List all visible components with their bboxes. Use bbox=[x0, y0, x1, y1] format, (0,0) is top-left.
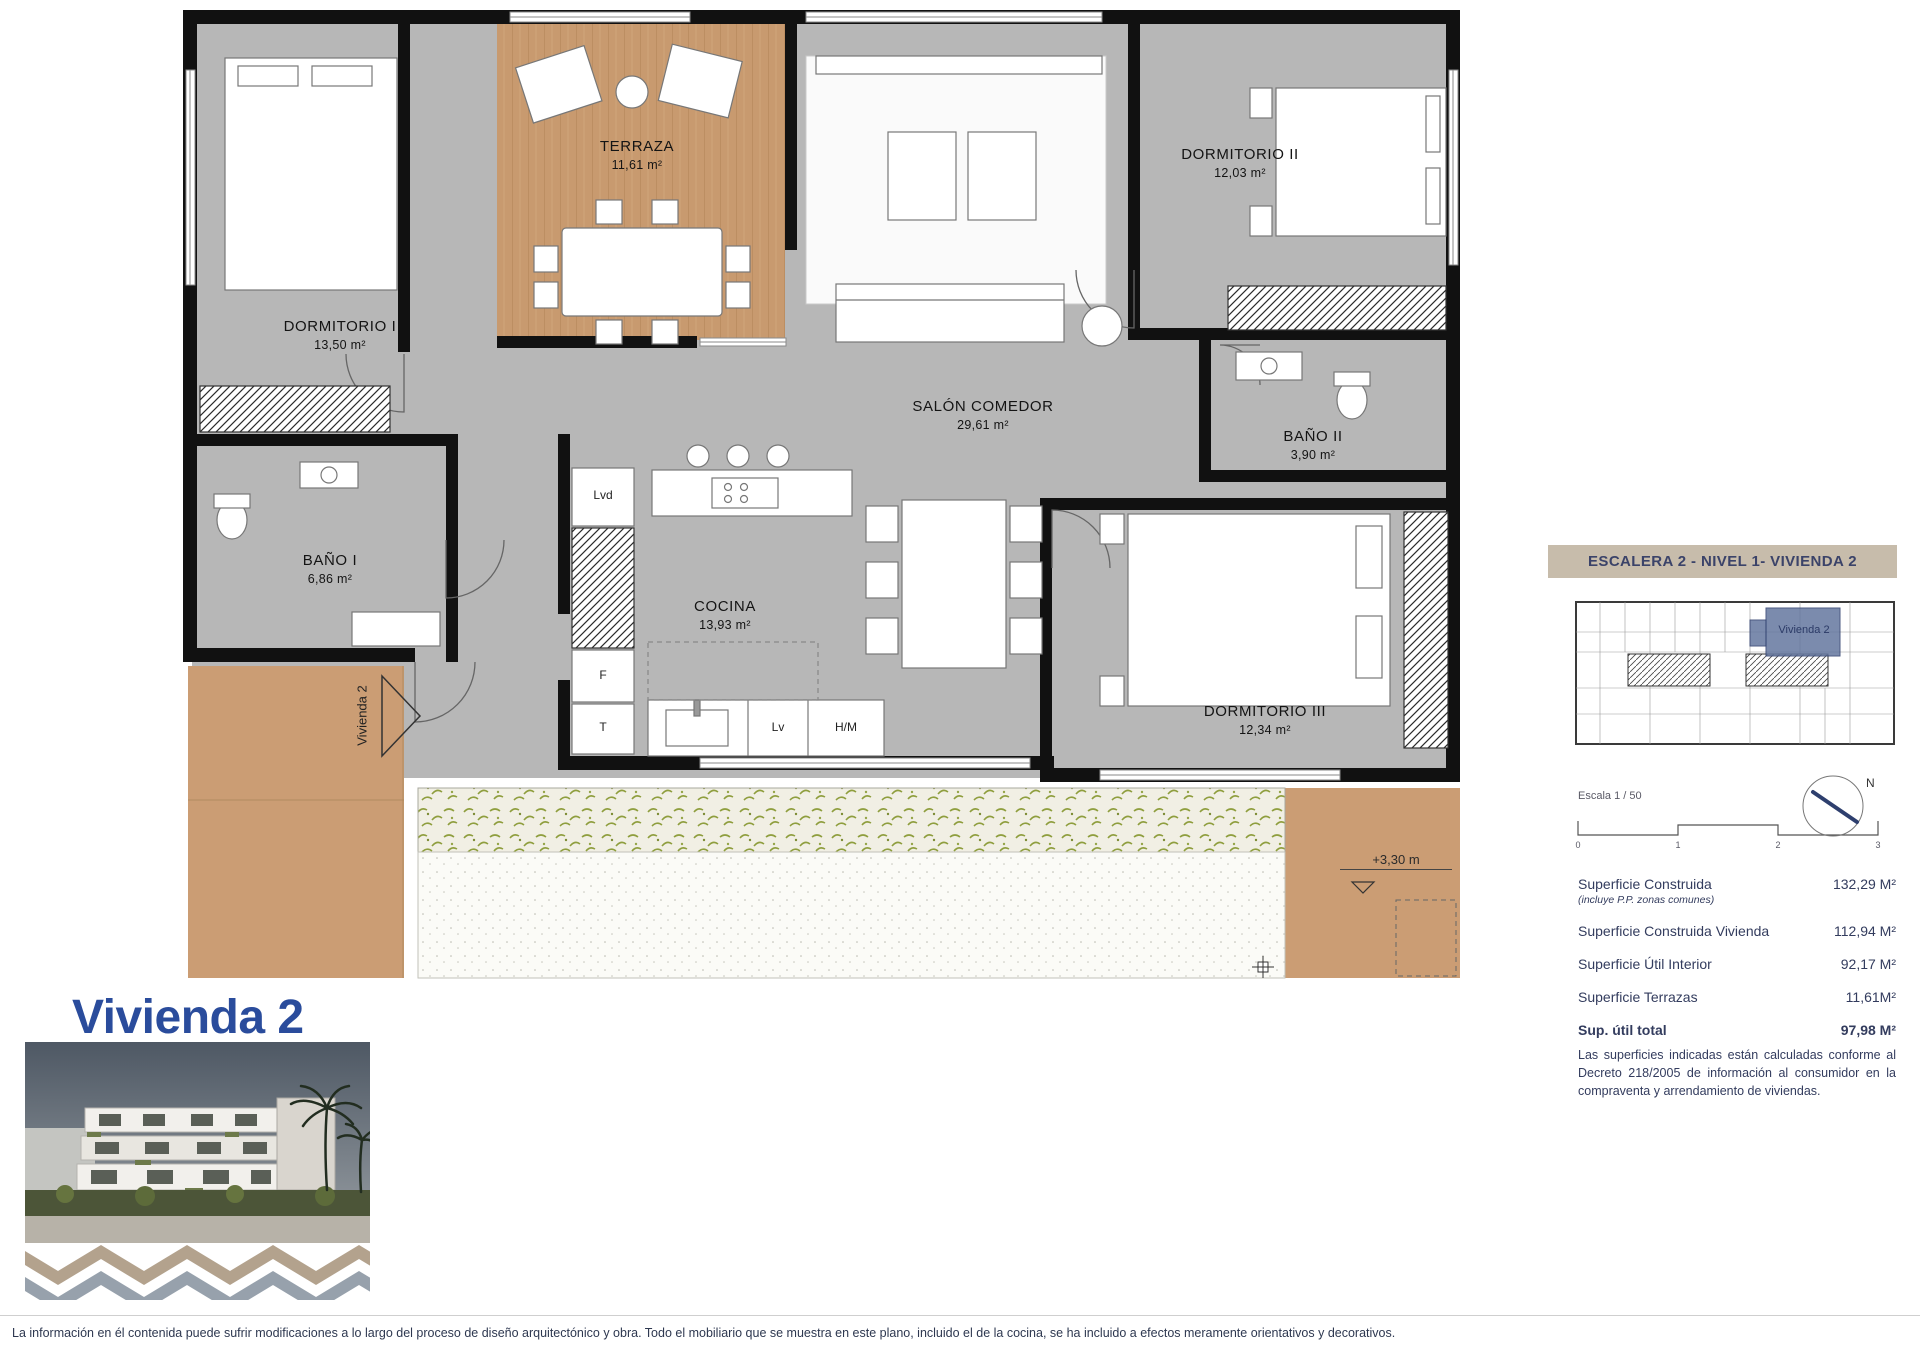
level-marker: +3,30 m bbox=[1340, 852, 1452, 870]
surface-value: 11,61M² bbox=[1846, 989, 1896, 1005]
room-label-dormitorio-1: DORMITORIO I 13,50 m² bbox=[245, 318, 435, 353]
footer-divider bbox=[0, 1315, 1920, 1316]
room-name: BAÑO II bbox=[1283, 428, 1342, 445]
appliance-label-lv: Lv bbox=[748, 720, 808, 734]
room-label-salon-comedor: SALÓN COMEDOR 29,61 m² bbox=[878, 398, 1088, 433]
surface-label: Superficie Construida Vivienda bbox=[1578, 923, 1769, 939]
surface-label: Superficie Útil Interior bbox=[1578, 956, 1712, 972]
building-render-image bbox=[25, 1042, 370, 1243]
room-area: 6,86 m² bbox=[255, 572, 405, 588]
appliance-label-f: F bbox=[572, 668, 634, 682]
table-row: Superficie Terrazas 11,61M² bbox=[1578, 989, 1896, 1005]
chevron-pattern bbox=[25, 1244, 370, 1300]
surface-table: Superficie Construida (incluye P.P. zona… bbox=[1578, 876, 1896, 1055]
room-name: DORMITORIO I bbox=[284, 318, 397, 335]
room-name: COCINA bbox=[694, 598, 756, 615]
surface-value: 132,29 M² bbox=[1833, 876, 1896, 892]
room-area: 12,03 m² bbox=[1145, 166, 1335, 182]
table-row-total: Sup. útil total 97,98 M² bbox=[1578, 1022, 1896, 1038]
room-area: 12,34 m² bbox=[1165, 723, 1365, 739]
surface-label: Sup. útil total bbox=[1578, 1022, 1667, 1038]
room-label-terraza: TERRAZA 11,61 m² bbox=[557, 138, 717, 173]
scale-tick-1: 1 bbox=[1670, 840, 1686, 850]
surface-value: 97,98 M² bbox=[1841, 1022, 1896, 1038]
brochure-page: TERRAZA 11,61 m² DORMITORIO I 13,50 m² D… bbox=[0, 0, 1920, 1357]
footer-disclaimer: La información en él contenida puede suf… bbox=[12, 1326, 1395, 1340]
key-plan-unit-label: Vivienda 2 bbox=[1756, 624, 1852, 636]
surface-value: 92,17 M² bbox=[1841, 956, 1896, 972]
room-name: BAÑO I bbox=[303, 552, 357, 569]
room-name: TERRAZA bbox=[600, 138, 674, 155]
panel-header: ESCALERA 2 - NIVEL 1- VIVIENDA 2 bbox=[1548, 545, 1897, 578]
room-name: DORMITORIO III bbox=[1204, 703, 1326, 720]
entrance-label: Vivienda 2 bbox=[355, 672, 370, 760]
compass-icon bbox=[1795, 770, 1895, 842]
surface-sublabel: (incluye P.P. zonas comunes) bbox=[1578, 894, 1714, 906]
room-area: 11,61 m² bbox=[557, 158, 717, 174]
room-area: 29,61 m² bbox=[878, 418, 1088, 434]
surface-label: Superficie Construida (incluye P.P. zona… bbox=[1578, 876, 1714, 906]
scale-tick-0: 0 bbox=[1570, 840, 1586, 850]
room-area: 13,50 m² bbox=[245, 338, 435, 354]
key-plan-drawing bbox=[1570, 588, 1900, 758]
room-label-bano-2: BAÑO II 3,90 m² bbox=[1243, 428, 1383, 463]
room-label-dormitorio-2: DORMITORIO II 12,03 m² bbox=[1145, 146, 1335, 181]
room-name: DORMITORIO II bbox=[1181, 146, 1299, 163]
table-row: Superficie Construida Vivienda 112,94 M² bbox=[1578, 923, 1896, 939]
room-label-dormitorio-3: DORMITORIO III 12,34 m² bbox=[1165, 703, 1365, 738]
room-area: 13,93 m² bbox=[645, 618, 805, 634]
table-row: Superficie Construida (incluye P.P. zona… bbox=[1578, 876, 1896, 906]
room-label-cocina: COCINA 13,93 m² bbox=[645, 598, 805, 633]
table-row: Superficie Útil Interior 92,17 M² bbox=[1578, 956, 1896, 972]
surface-label: Superficie Terrazas bbox=[1578, 989, 1698, 1005]
scale-tick-2: 2 bbox=[1770, 840, 1786, 850]
appliance-label-hm: H/M bbox=[808, 720, 884, 734]
room-area: 3,90 m² bbox=[1243, 448, 1383, 464]
compass-north-label: N bbox=[1866, 776, 1875, 790]
appliance-label-lvd: Lvd bbox=[572, 488, 634, 502]
room-label-bano-1: BAÑO I 6,86 m² bbox=[255, 552, 405, 587]
legal-note: Las superficies indicadas están calculad… bbox=[1578, 1046, 1896, 1100]
surface-value: 112,94 M² bbox=[1834, 923, 1896, 939]
page-title: Vivienda 2 bbox=[72, 990, 304, 1045]
room-name: SALÓN COMEDOR bbox=[912, 398, 1053, 415]
scale-label: Escala 1 / 50 bbox=[1578, 790, 1642, 802]
appliance-label-t: T bbox=[572, 720, 634, 734]
